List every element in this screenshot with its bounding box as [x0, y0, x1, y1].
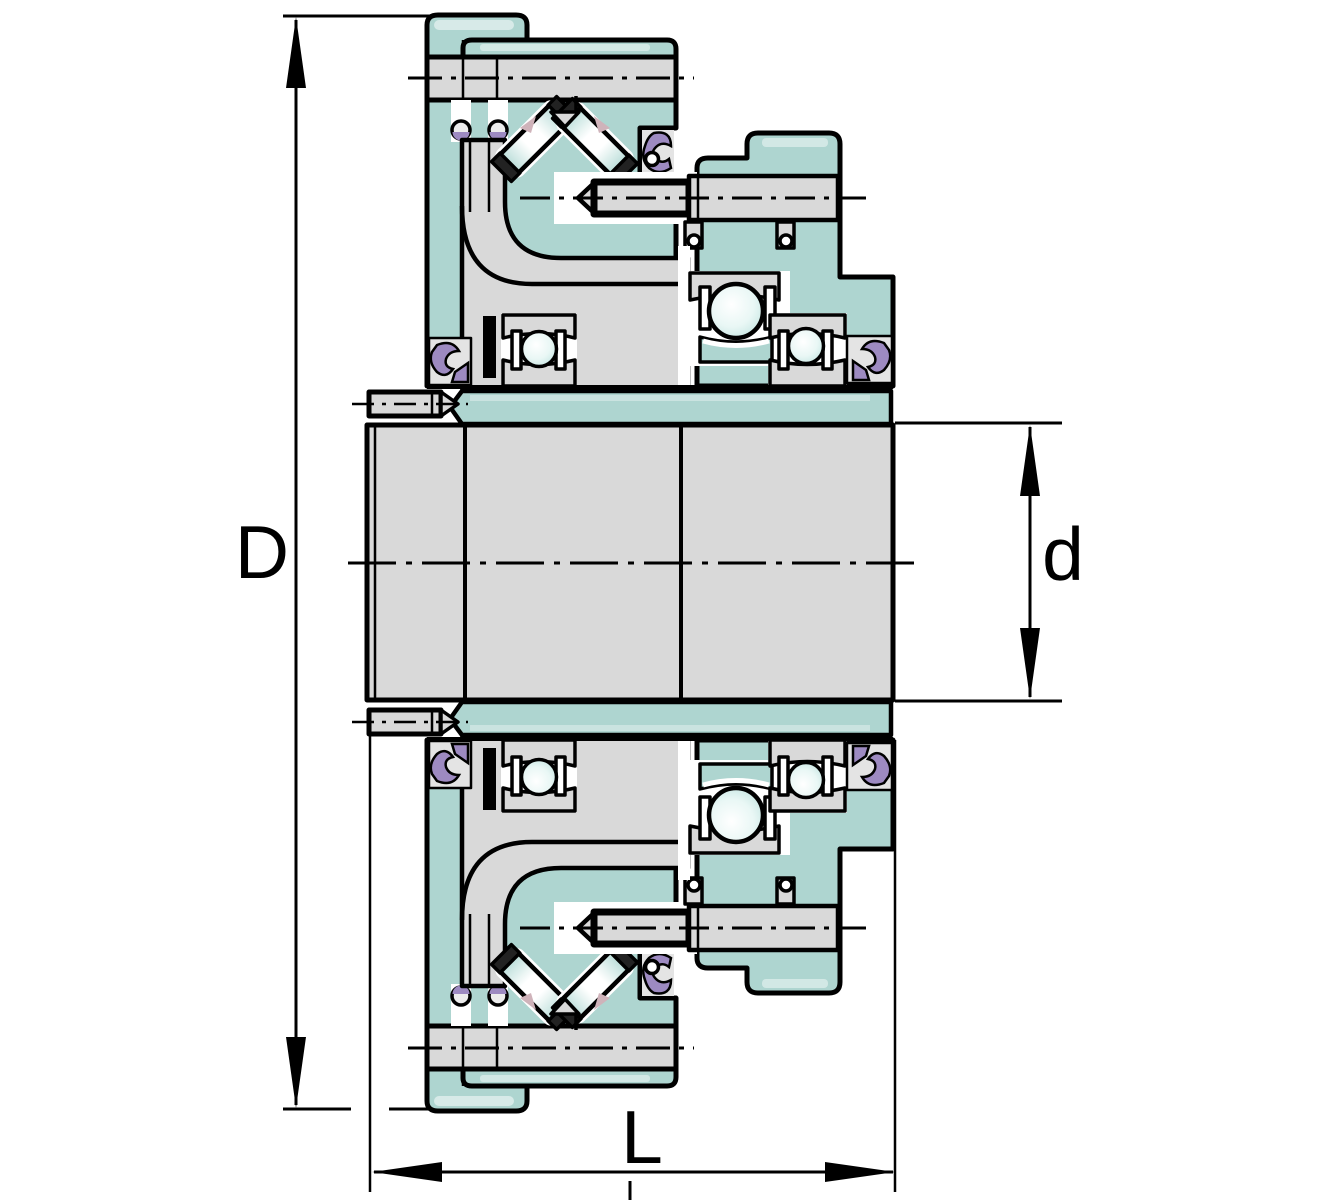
- label-d: d: [1042, 512, 1084, 596]
- dimension-d: d: [895, 423, 1084, 701]
- bottom-half: [352, 702, 893, 1111]
- label-L: L: [621, 1095, 663, 1179]
- arrowhead-down: [286, 1037, 306, 1108]
- arrowhead-up: [1020, 425, 1040, 496]
- arrowhead-left: [372, 1162, 442, 1182]
- arrowhead-right: [825, 1162, 895, 1182]
- label-D: D: [235, 510, 289, 594]
- bearing-unit-cross-section: D d L: [0, 0, 1330, 1200]
- top-half: [352, 15, 893, 424]
- arrowhead-up: [286, 17, 306, 88]
- bearing-unit-drawing-canvas: D d L: [0, 0, 1330, 1200]
- arrowhead-down: [1020, 628, 1040, 699]
